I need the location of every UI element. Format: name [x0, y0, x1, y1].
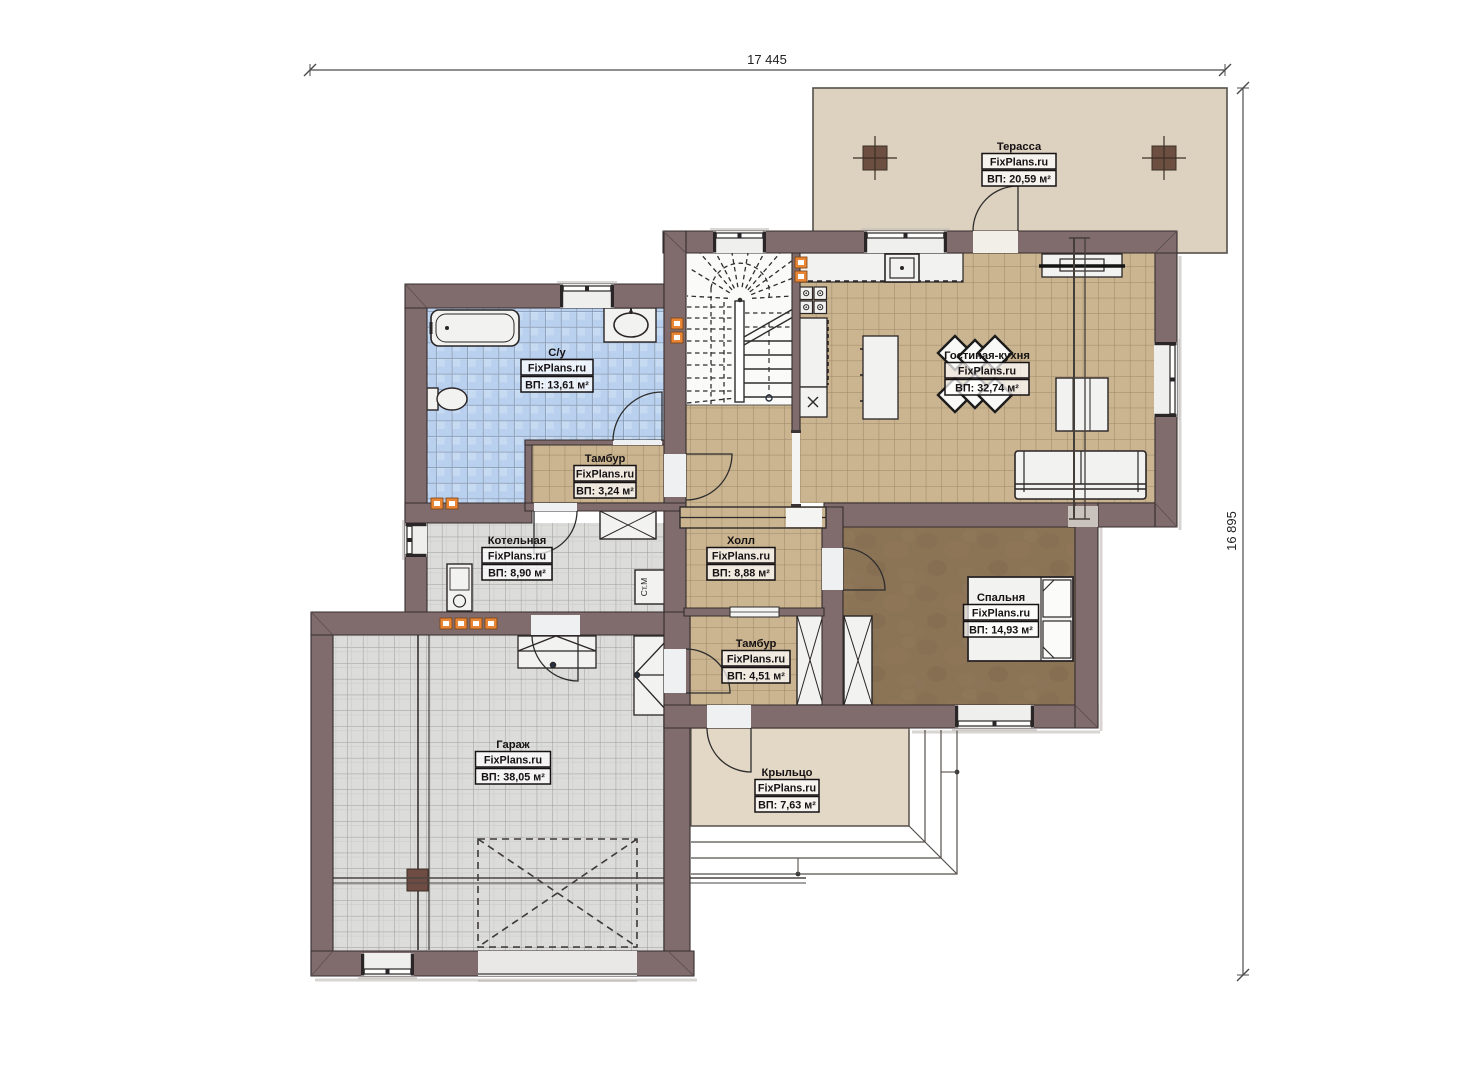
svg-text:FixPlans.ru: FixPlans.ru — [712, 551, 770, 563]
svg-text:FixPlans.ru: FixPlans.ru — [727, 654, 785, 666]
svg-text:Ст.М: Ст.М — [639, 578, 649, 597]
svg-text:FixPlans.ru: FixPlans.ru — [972, 608, 1030, 620]
svg-text:16 895: 16 895 — [1224, 511, 1239, 551]
svg-text:Терасса: Терасса — [997, 141, 1042, 153]
svg-text:Тамбур: Тамбур — [585, 453, 626, 465]
svg-text:Холл: Холл — [727, 535, 755, 547]
svg-text:Гостиная-кухня: Гостиная-кухня — [944, 350, 1030, 362]
svg-text:FixPlans.ru: FixPlans.ru — [990, 157, 1048, 169]
svg-text:ВП: 7,63 м²: ВП: 7,63 м² — [758, 800, 816, 812]
svg-text:ВП: 32,74 м²: ВП: 32,74 м² — [955, 383, 1019, 395]
svg-text:Котельная: Котельная — [488, 535, 547, 547]
svg-text:ВП: 8,88 м²: ВП: 8,88 м² — [712, 568, 770, 580]
svg-text:С/у: С/у — [548, 347, 566, 359]
svg-text:ВП: 13,61 м²: ВП: 13,61 м² — [525, 380, 589, 392]
svg-text:Тамбур: Тамбур — [736, 638, 777, 650]
svg-text:Спальня: Спальня — [977, 592, 1025, 604]
svg-text:ВП: 38,05 м²: ВП: 38,05 м² — [481, 772, 545, 784]
svg-text:FixPlans.ru: FixPlans.ru — [484, 755, 542, 767]
svg-text:FixPlans.ru: FixPlans.ru — [958, 366, 1016, 378]
svg-text:ВП: 20,59 м²: ВП: 20,59 м² — [987, 174, 1051, 186]
svg-text:ВП: 14,93 м²: ВП: 14,93 м² — [969, 625, 1033, 637]
svg-text:FixPlans.ru: FixPlans.ru — [488, 551, 546, 563]
svg-text:17 445: 17 445 — [747, 52, 787, 67]
svg-text:Крыльцо: Крыльцо — [762, 767, 813, 779]
svg-text:FixPlans.ru: FixPlans.ru — [576, 469, 634, 481]
svg-text:ВП: 4,51 м²: ВП: 4,51 м² — [727, 671, 785, 683]
svg-text:FixPlans.ru: FixPlans.ru — [758, 783, 816, 795]
svg-text:FixPlans.ru: FixPlans.ru — [528, 363, 586, 375]
svg-text:ВП: 8,90 м²: ВП: 8,90 м² — [488, 568, 546, 580]
svg-text:ВП: 3,24 м²: ВП: 3,24 м² — [576, 486, 634, 498]
svg-text:Гараж: Гараж — [496, 739, 530, 751]
